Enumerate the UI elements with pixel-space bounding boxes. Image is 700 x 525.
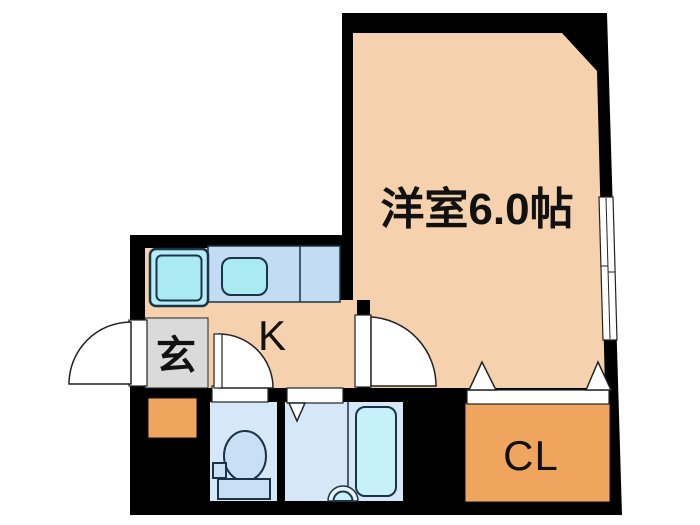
- western-room-label: 洋室6.0帖: [380, 184, 573, 234]
- kitchen-label: K: [258, 312, 286, 359]
- bathtub: [356, 407, 396, 496]
- toilet-door-leaf: [214, 334, 222, 388]
- entrance-step-box: [148, 398, 197, 438]
- sink-unit-inner: [157, 256, 202, 301]
- toilet-tank: [218, 479, 270, 499]
- entrance-door-swing-arc: [69, 322, 131, 384]
- closet-label: CL: [503, 432, 559, 479]
- kitchen-room-door-leaf: [355, 315, 371, 387]
- closet-door-opening: [467, 390, 609, 404]
- bath-drain-dome-inner: [334, 492, 353, 502]
- bath-door-opening: [287, 388, 343, 403]
- stove-sink-basin: [222, 258, 267, 295]
- floor-plan-page: 洋室6.0帖 K 玄 CL: [0, 0, 700, 525]
- kitchen-counter-group: [150, 246, 340, 306]
- toilet-bowl: [224, 431, 266, 481]
- floor-plan-svg: 洋室6.0帖 K 玄 CL: [0, 0, 700, 525]
- toilet-flush-handle: [213, 463, 226, 478]
- entrance-label: 玄: [156, 334, 196, 378]
